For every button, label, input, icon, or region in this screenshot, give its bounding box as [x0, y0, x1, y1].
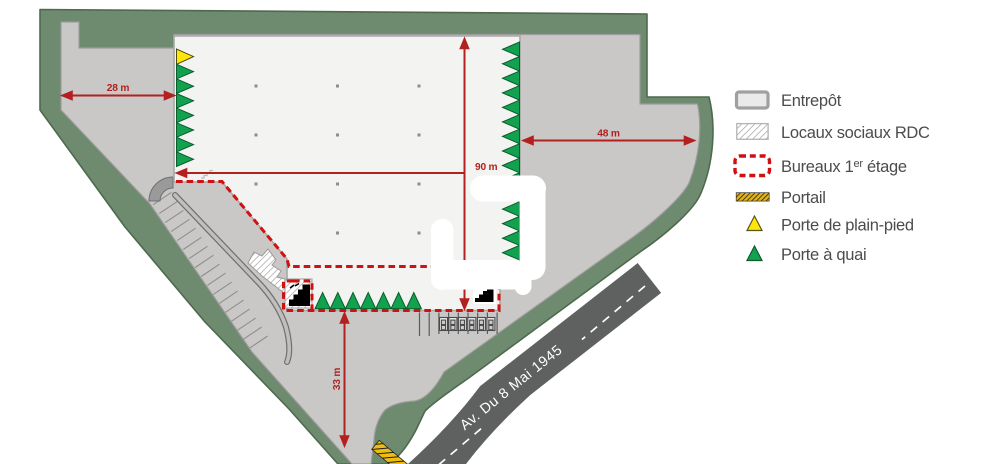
svg-text:90 m: 90 m	[475, 162, 498, 173]
svg-text:Bureaux 1er étage: Bureaux 1er étage	[781, 158, 907, 176]
svg-text:Porte à quai: Porte à quai	[781, 246, 866, 264]
svg-text:28 m: 28 m	[107, 83, 130, 94]
svg-text:Locaux sociaux RDC: Locaux sociaux RDC	[781, 124, 930, 142]
svg-text:48 m: 48 m	[597, 129, 620, 140]
svg-text:Entrepôt: Entrepôt	[781, 92, 842, 110]
svg-text:Porte de plain-pied: Porte de plain-pied	[781, 217, 914, 235]
svg-text:Portail: Portail	[781, 189, 826, 207]
svg-text:33 m: 33 m	[332, 368, 343, 391]
